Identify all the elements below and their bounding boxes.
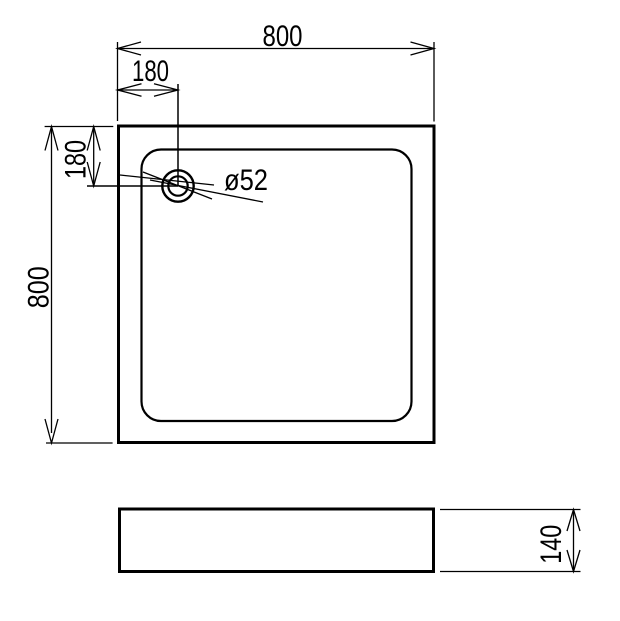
svg-text:ø52: ø52 (224, 164, 268, 197)
svg-text:180: 180 (132, 55, 169, 88)
svg-text:800: 800 (22, 266, 55, 308)
svg-text:800: 800 (263, 20, 303, 53)
svg-text:140: 140 (535, 525, 568, 564)
svg-text:180: 180 (59, 140, 92, 179)
